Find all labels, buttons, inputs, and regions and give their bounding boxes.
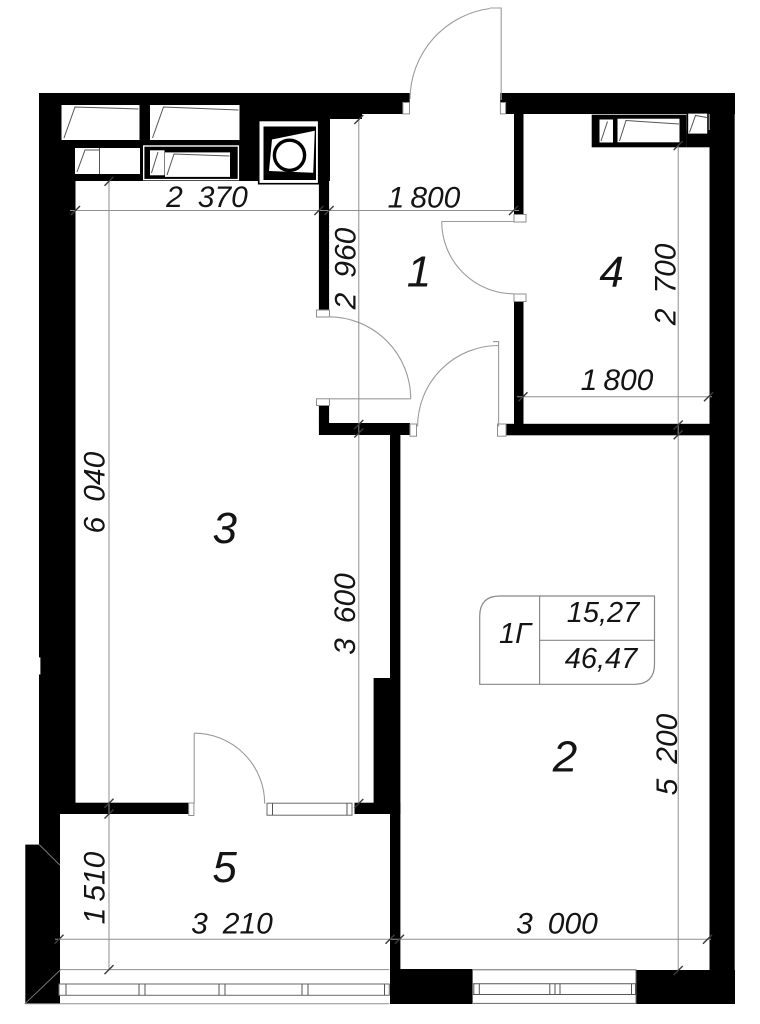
svg-text:2 370: 2 370 — [165, 181, 248, 214]
svg-text:6 040: 6 040 — [79, 451, 112, 533]
svg-text:3 210: 3 210 — [191, 908, 273, 941]
svg-text:1 800: 1 800 — [581, 364, 654, 397]
svg-text:5: 5 — [212, 843, 237, 892]
svg-text:3 000: 3 000 — [516, 908, 598, 941]
svg-text:15,27: 15,27 — [567, 597, 641, 629]
svg-text:1: 1 — [407, 248, 431, 297]
svg-text:1 510: 1 510 — [79, 851, 112, 924]
svg-text:5 200: 5 200 — [651, 713, 684, 795]
svg-text:3 600: 3 600 — [329, 573, 362, 655]
svg-text:2: 2 — [552, 732, 577, 781]
svg-text:4: 4 — [599, 248, 623, 297]
svg-text:3: 3 — [212, 504, 237, 553]
svg-text:1Г: 1Г — [499, 618, 533, 650]
svg-text:2 700: 2 700 — [650, 243, 683, 326]
svg-text:1 800: 1 800 — [388, 182, 461, 215]
svg-text:46,47: 46,47 — [565, 643, 639, 675]
svg-text:2 960: 2 960 — [330, 227, 363, 310]
